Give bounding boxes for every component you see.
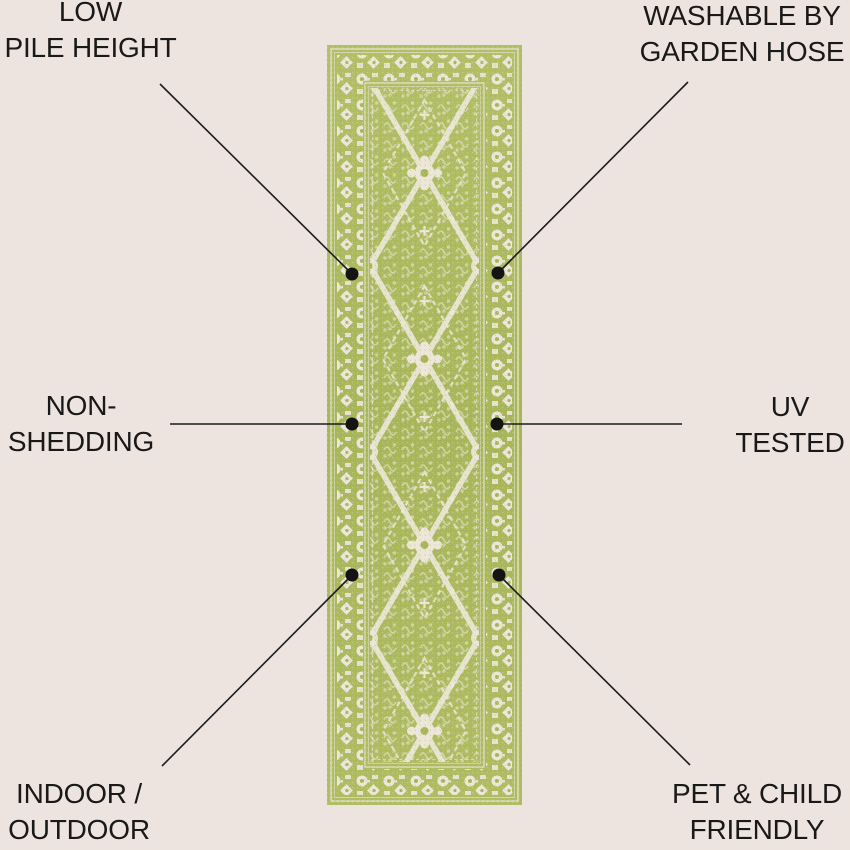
feature-label-non-shedding: NON- SHEDDING (0, 388, 162, 460)
feature-label-low-pile-height: LOW PILE HEIGHT (0, 0, 181, 66)
callout-line-pet-child (499, 575, 690, 765)
feature-label-line: SHEDDING (0, 424, 162, 460)
feature-label-line: INDOOR / (0, 776, 158, 812)
feature-label-line: WASHABLE BY (632, 0, 850, 34)
feature-label-line: TESTED (715, 425, 850, 461)
feature-label-line: FRIENDLY (670, 812, 844, 848)
callout-line-indoor-outdoor (162, 575, 352, 766)
feature-label-washable-by-garden-hose: WASHABLE BY GARDEN HOSE (632, 0, 850, 70)
feature-label-pet-child-friendly: PET & CHILD FRIENDLY (670, 776, 844, 848)
infographic-stage: LOW PILE HEIGHT WASHABLE BY GARDEN HOSE … (0, 0, 850, 850)
feature-label-line: UV (715, 389, 850, 425)
callout-line-low-pile-height (160, 84, 352, 274)
rug-product-image (327, 45, 522, 805)
rug-texture (327, 45, 522, 805)
feature-label-line: NON- (0, 388, 162, 424)
feature-label-line: GARDEN HOSE (632, 34, 850, 70)
feature-label-uv-tested: UV TESTED (715, 389, 850, 461)
feature-label-line: LOW (0, 0, 181, 30)
feature-label-line: OUTDOOR (0, 812, 158, 848)
feature-label-line: PILE HEIGHT (0, 30, 181, 66)
feature-label-indoor-outdoor: INDOOR / OUTDOOR (0, 776, 158, 848)
callout-line-washable (498, 82, 688, 273)
feature-label-line: PET & CHILD (670, 776, 844, 812)
